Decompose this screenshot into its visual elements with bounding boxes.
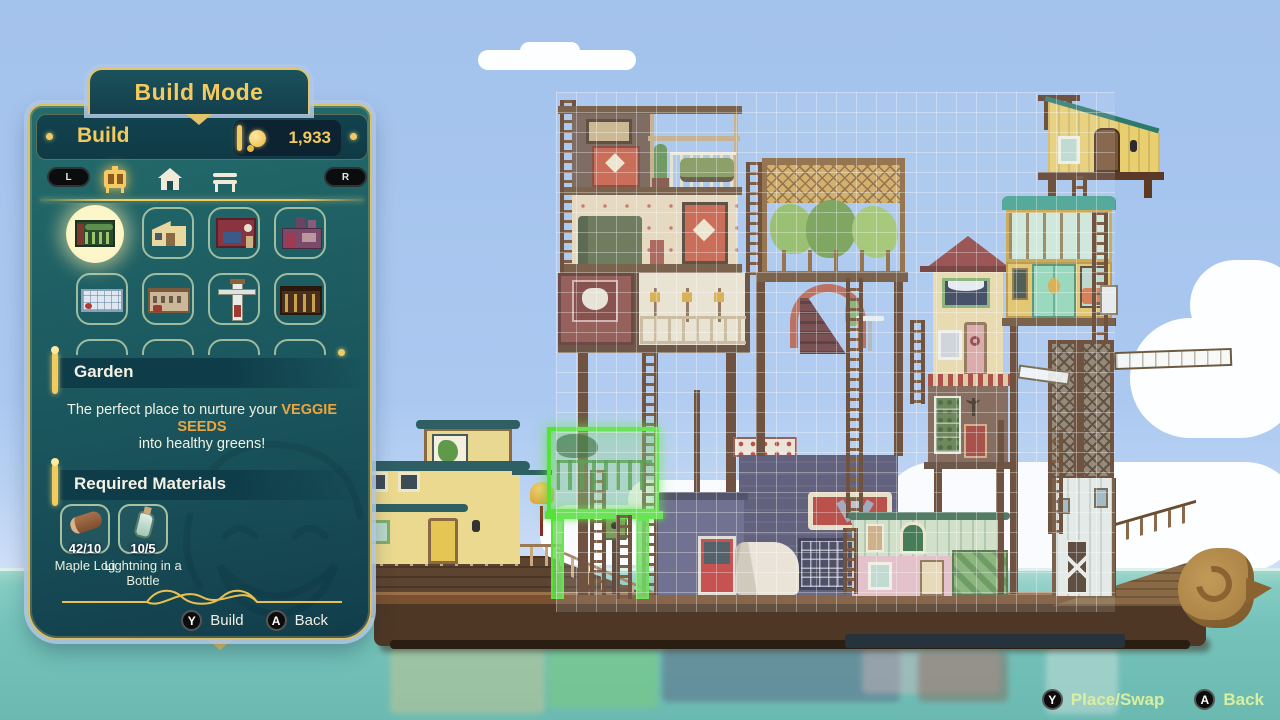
- right-bumper-button[interactable]: R: [324, 167, 367, 187]
- gold-accent-bar: [52, 464, 58, 506]
- thumb-detail: [244, 224, 252, 232]
- left-bumper-button[interactable]: L: [47, 167, 90, 187]
- bedroom-thumb: [216, 218, 256, 248]
- a-button-key: A: [272, 614, 281, 628]
- bilge-strip: [845, 634, 1125, 648]
- foundry-thumb: [282, 217, 322, 249]
- game-screen: Build Mode Build 1,933: [0, 0, 1280, 720]
- thumb-window: [155, 233, 162, 240]
- y-button-key: Y: [1048, 693, 1056, 707]
- build-grid-overlay: [556, 92, 1115, 612]
- back-action-label: Back: [295, 612, 328, 629]
- furniture-tab-icon[interactable]: [210, 166, 240, 194]
- thumb-detail: [153, 305, 162, 312]
- bench-leg: [232, 184, 235, 192]
- gold-accent-bar: [52, 352, 58, 394]
- build-header-label: Build: [77, 124, 130, 148]
- selection-header-band: Garden: [60, 358, 360, 388]
- reflection: [390, 648, 545, 714]
- place-swap-label: Place/Swap: [1071, 690, 1165, 710]
- description-text: The perfect place to nurture your: [67, 402, 281, 418]
- house-tab-icon[interactable]: [155, 166, 185, 194]
- stove-leg: [121, 188, 124, 193]
- thumb-fence: [85, 232, 113, 244]
- thumb-bed: [223, 232, 241, 243]
- cloud: [1190, 260, 1280, 350]
- selection-name: Garden: [74, 362, 134, 382]
- cabin-window: [398, 472, 420, 492]
- thumb-sign: [302, 233, 316, 242]
- bell-tassel: [540, 506, 543, 536]
- lightning-bottle-icon: [133, 510, 156, 539]
- back-label: Back: [1223, 690, 1264, 710]
- tab-divider: [40, 199, 364, 201]
- long-cabin-thumb: [81, 289, 123, 312]
- thumb-windows: [153, 296, 185, 303]
- grid-item[interactable]: [142, 273, 194, 325]
- grid-item[interactable]: [208, 339, 260, 355]
- grid-item[interactable]: [142, 339, 194, 355]
- reflection: [918, 652, 1008, 702]
- grid-item[interactable]: [142, 207, 194, 259]
- smithy-thumb: [280, 286, 322, 315]
- currency-chip: 1,933: [233, 120, 341, 156]
- bench-leg: [215, 184, 218, 192]
- garden-thumb: [75, 220, 115, 247]
- y-button-icon[interactable]: Y: [1042, 689, 1063, 710]
- maple-log-icon: [68, 509, 104, 535]
- grid-item[interactable]: [76, 273, 128, 325]
- windmill-thumb: [216, 279, 256, 321]
- stove-door: [108, 174, 114, 184]
- bell-bracket: [512, 470, 552, 475]
- build-mode-title: Build Mode: [88, 68, 310, 114]
- thumb-canopy: [85, 224, 113, 230]
- grid-item-garden-selected[interactable]: [66, 205, 124, 263]
- right-bumper-label: R: [342, 172, 349, 183]
- build-panel-inner: Build 1,933 L R: [30, 106, 370, 638]
- gold-flourish: [62, 584, 342, 610]
- y-button-icon[interactable]: Y: [181, 610, 202, 631]
- hud-button-row: Y Place/Swap A Back: [1042, 689, 1264, 710]
- grid-item[interactable]: [208, 207, 260, 259]
- glim-coin-icon: [249, 130, 266, 147]
- gold-dot: [350, 133, 357, 140]
- chevron-down-icon: [186, 114, 212, 125]
- a-button-icon[interactable]: A: [266, 610, 287, 631]
- buildings-tab-icon[interactable]: [100, 166, 130, 194]
- build-panel: Build 1,933 L R: [28, 104, 372, 640]
- house-door: [167, 181, 173, 190]
- gold-dot: [338, 349, 345, 356]
- a-button-key: A: [1201, 693, 1210, 707]
- build-mode-title-label: Build Mode: [135, 79, 264, 105]
- currency-amount: 1,933: [288, 128, 331, 148]
- description-text: into healthy greens!: [139, 436, 266, 452]
- currency-accent-bar: [237, 125, 242, 151]
- cabin-door: [428, 518, 458, 564]
- grid-item[interactable]: [208, 273, 260, 325]
- thumb-door: [286, 233, 296, 247]
- house-roof: [158, 168, 182, 178]
- roof-slab: [416, 420, 520, 429]
- material-count: 42/10: [62, 541, 108, 556]
- grid-item[interactable]: [274, 273, 326, 325]
- stove-chimney: [112, 166, 118, 171]
- materials-header-band: Required Materials: [60, 470, 360, 500]
- selection-description: The perfect place to nurture your VEGGIE…: [52, 402, 352, 453]
- small-house-thumb: [152, 221, 186, 246]
- material-count: 10/5: [120, 541, 166, 556]
- grid-item[interactable]: [274, 207, 326, 259]
- thumb-detail: [246, 236, 253, 248]
- dining-hall-thumb: [148, 288, 190, 313]
- left-bumper-label: L: [65, 172, 71, 183]
- stove-door: [117, 174, 123, 184]
- lamp: [472, 520, 480, 532]
- cloud: [520, 42, 580, 60]
- attic-lamp: [1130, 140, 1137, 152]
- thumb-detail: [77, 224, 84, 245]
- figurehead-tip: [1246, 578, 1272, 604]
- stove-leg: [106, 188, 109, 193]
- thumb-bars: [285, 294, 317, 312]
- materials-header-label: Required Materials: [74, 474, 226, 494]
- material-card-maple-log[interactable]: 42/10: [60, 504, 110, 554]
- thumb-detail: [85, 303, 92, 309]
- reflection: [548, 650, 658, 708]
- thumb-door: [166, 233, 175, 246]
- material-card-lightning-bottle[interactable]: 10/5: [118, 504, 168, 554]
- panel-button-row: Y Build A Back: [181, 610, 342, 631]
- thumb-blade: [218, 289, 256, 295]
- y-button-key: Y: [188, 614, 196, 628]
- thumb-roof: [230, 279, 245, 284]
- stilt: [1144, 180, 1152, 198]
- grid-item[interactable]: [274, 339, 326, 355]
- grid-item[interactable]: [76, 339, 128, 355]
- thumb-door: [234, 305, 241, 317]
- build-action-label: Build: [210, 612, 243, 629]
- a-button-icon[interactable]: A: [1194, 689, 1215, 710]
- roof-art-plant: [438, 440, 458, 462]
- item-grid: [30, 203, 370, 355]
- panel-bottom-notch: [208, 640, 232, 650]
- bench-back: [213, 173, 237, 177]
- gold-dot: [46, 133, 53, 140]
